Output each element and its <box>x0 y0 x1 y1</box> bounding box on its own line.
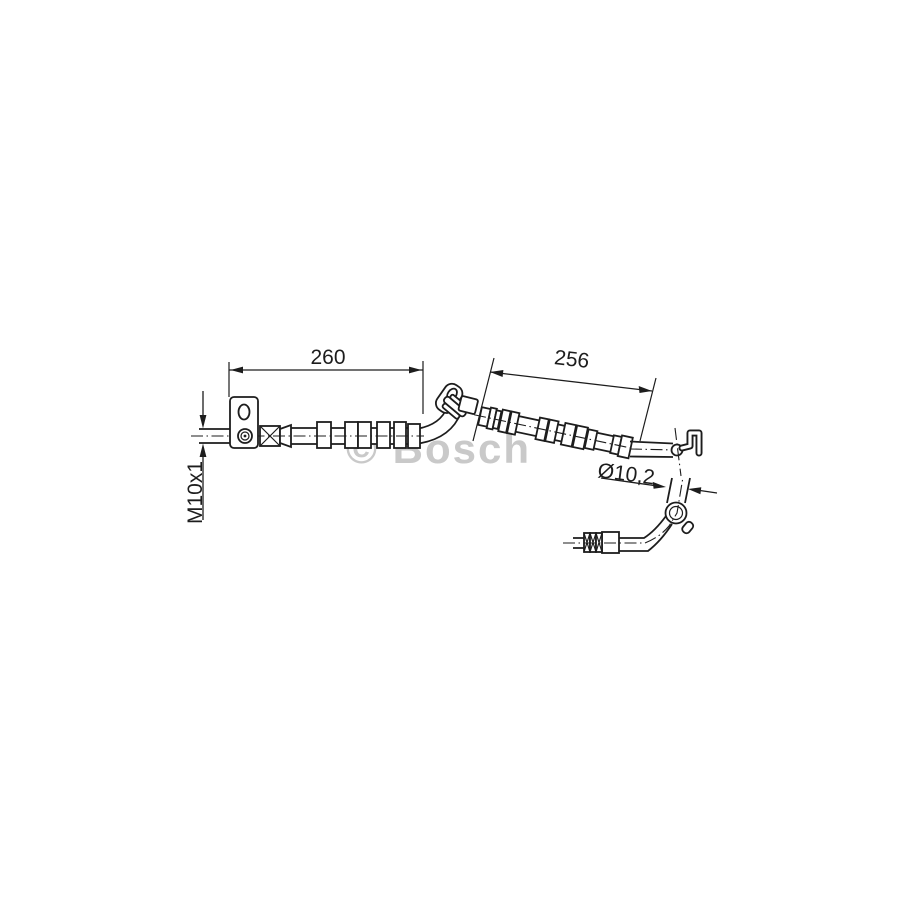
technical-drawing: © Bosch <box>0 0 900 900</box>
dimension-260-label: 260 <box>310 346 345 369</box>
arrow-left-icon <box>688 487 701 494</box>
diameter-label: Ø10,2 <box>596 459 656 489</box>
dimension-thread: M10x1 <box>184 391 207 524</box>
dimension-diameter: Ø10,2 <box>596 459 717 494</box>
dimension-256-label: 256 <box>553 346 590 373</box>
arrow-right-icon <box>639 386 652 393</box>
arrow-right-icon <box>653 482 666 489</box>
left-bracket <box>230 397 258 448</box>
arrow-left-icon <box>490 370 503 377</box>
secondary-end-view <box>563 477 695 553</box>
arrow-down-icon <box>200 415 207 429</box>
thread-size-label: M10x1 <box>184 461 207 524</box>
arrow-up-icon <box>200 444 207 458</box>
arrow-left-icon <box>231 367 244 374</box>
elbow-outlet <box>458 396 478 415</box>
horizontal-hose <box>191 422 424 448</box>
arrow-right-icon <box>409 367 422 374</box>
product-image: © Bosch <box>0 0 900 900</box>
